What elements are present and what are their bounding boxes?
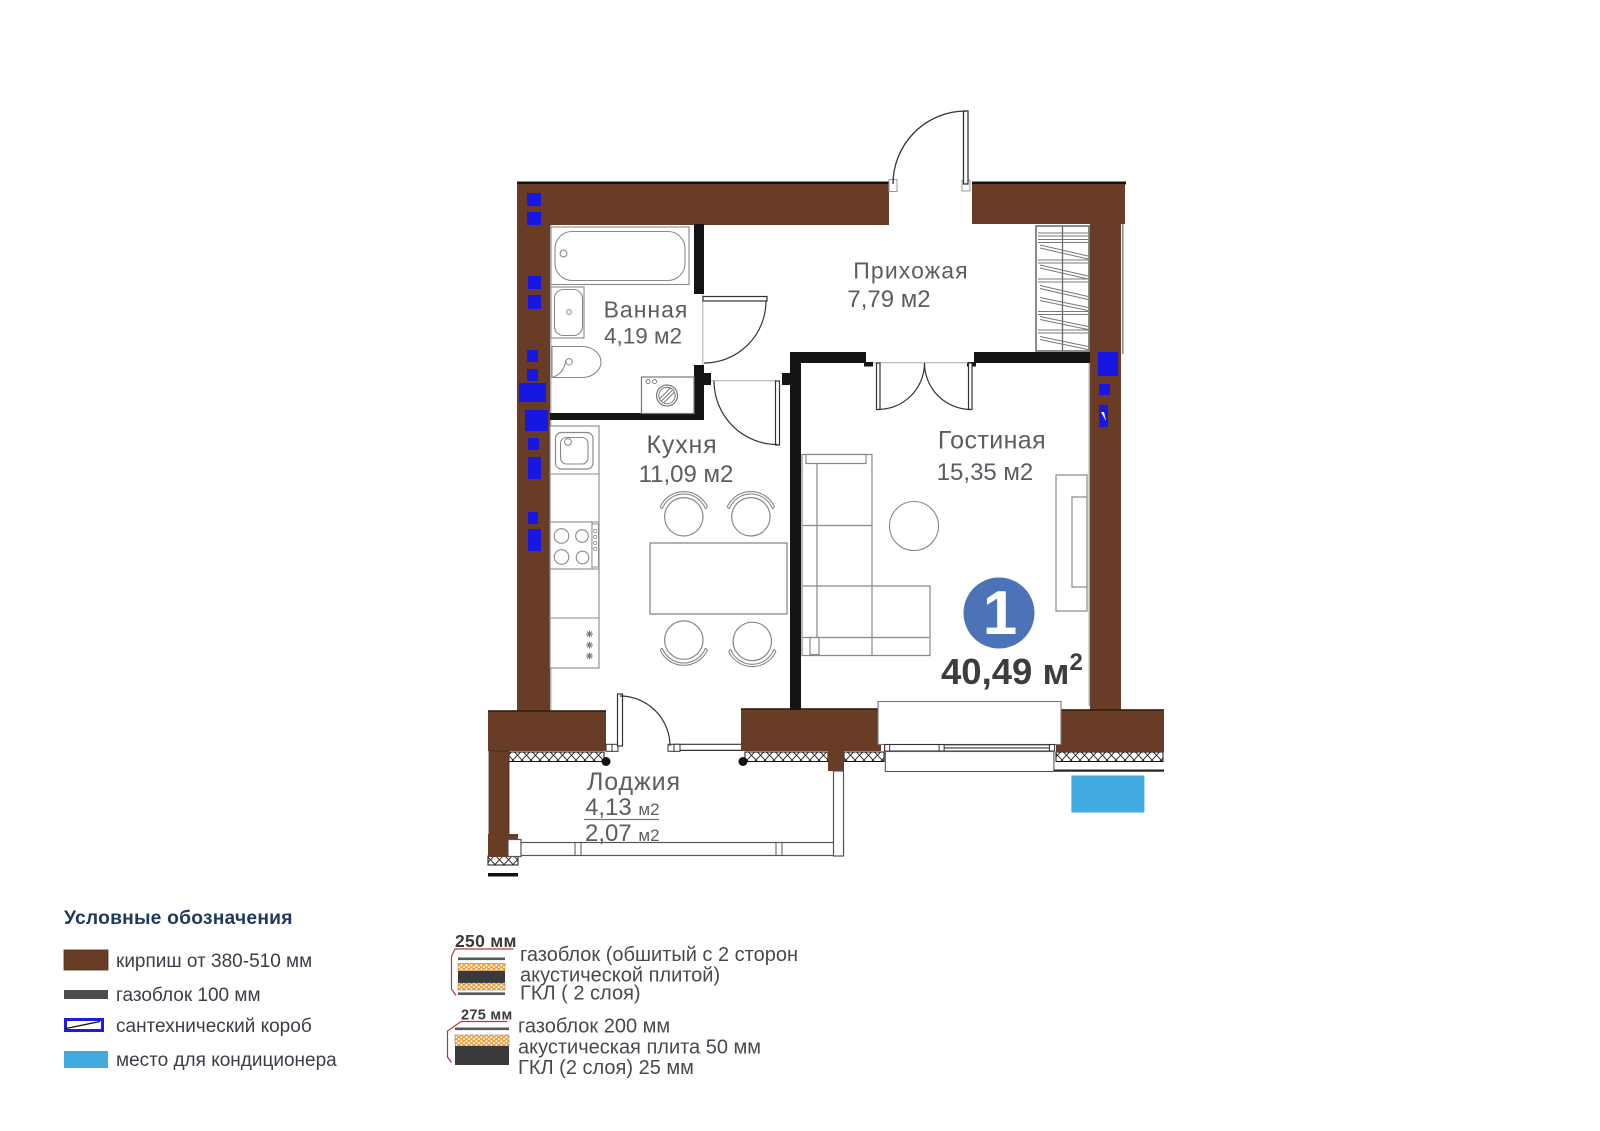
svg-text:газоблок 200 мм: газоблок 200 мм — [518, 1016, 670, 1038]
svg-text:Гостиная: Гостиная — [938, 427, 1046, 455]
svg-text:250 мм: 250 мм — [455, 931, 517, 951]
svg-text:акустическая плита 50 мм: акустическая плита 50 мм — [518, 1037, 761, 1059]
svg-text:1: 1 — [983, 579, 1017, 648]
svg-text:Лоджия: Лоджия — [587, 768, 681, 796]
svg-text:4,19 м2: 4,19 м2 — [604, 324, 682, 349]
svg-text:11,09 м2: 11,09 м2 — [639, 461, 734, 488]
svg-text:7,79 м2: 7,79 м2 — [847, 286, 930, 313]
svg-text:Ванная: Ванная — [604, 297, 689, 323]
svg-text:сантехнический короб: сантехнический короб — [116, 1016, 312, 1037]
svg-text:Прихожая: Прихожая — [853, 258, 968, 284]
svg-text:Кухня: Кухня — [647, 431, 718, 459]
svg-text:газоблок 100 мм: газоблок 100 мм — [116, 985, 261, 1006]
svg-text:40,49 м2: 40,49 м2 — [941, 649, 1083, 692]
svg-text:место для кондиционера: место для кондиционера — [116, 1050, 337, 1071]
svg-text:ГКЛ (2 слоя) 25 мм: ГКЛ (2 слоя) 25 мм — [518, 1057, 694, 1079]
svg-text:газоблок (обшитый с 2 сторон: газоблок (обшитый с 2 сторон — [520, 944, 798, 966]
svg-text:15,35 м2: 15,35 м2 — [937, 459, 1034, 486]
svg-text:Условные обозначения: Условные обозначения — [64, 908, 293, 929]
svg-text:кирпиш от 380-510 мм: кирпиш от 380-510 мм — [116, 951, 312, 972]
svg-text:ГКЛ ( 2 слоя): ГКЛ ( 2 слоя) — [520, 983, 641, 1005]
